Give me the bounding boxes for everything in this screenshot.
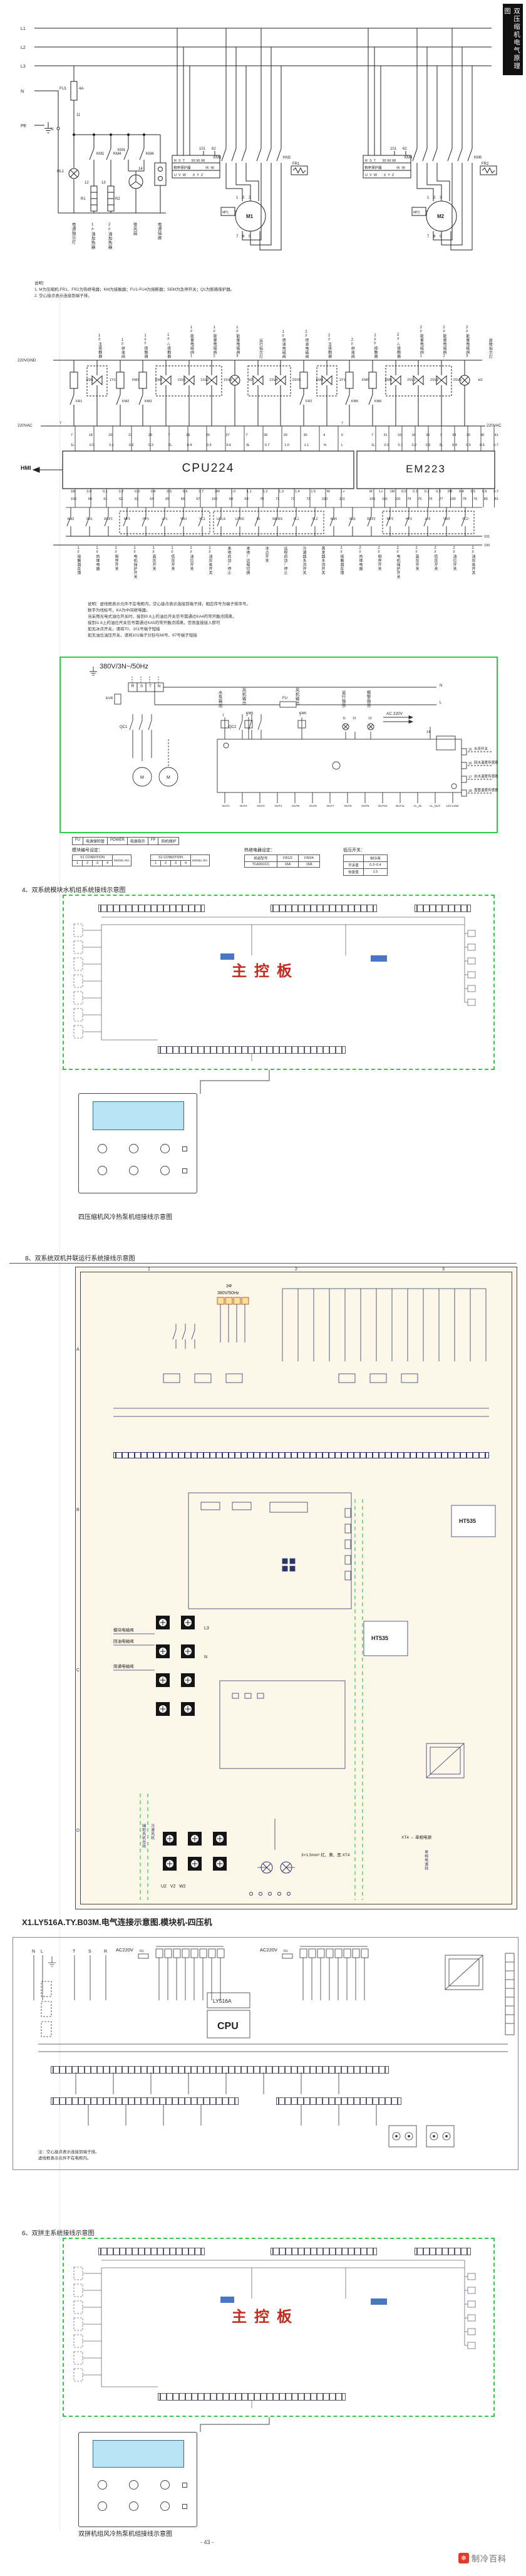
wire-number: 6 [341,434,343,437]
t1-col: 4 [103,861,113,866]
input-caption: 2#电机保护开关 [381,546,400,579]
terminal: 0.6 [226,444,231,447]
r-label: R [104,1950,107,1954]
bus-n: N [21,90,24,94]
t1-title: 模块编号设定： [72,848,103,853]
terminal: 0.2 [129,444,134,447]
contact-tag: KM4 [113,152,121,156]
t1-col: 1 [151,861,161,866]
display-wire-svg [175,1070,276,1094]
wire-number: 101 [339,497,345,501]
panel-button [129,2480,138,2490]
wire-number: 100 [71,497,76,501]
wire-number: 73 [306,497,310,501]
output-tag: KM3 [124,378,147,382]
callout-fan1: 风机输出 [241,688,245,705]
sensor-num: 17 [468,776,472,779]
legend-cell: 电源保险管 [83,837,108,845]
fu-label: FU [140,1950,144,1953]
wire-12: 12 [85,181,89,185]
note-line: 数字为线标号，KA为中间继电器。 [88,608,250,614]
output-tag: 2SV2 [423,378,446,382]
legend-cell: 风机保护 [158,837,179,845]
input-caption: 远程启动/停止 [268,546,287,575]
output-tag: KM6 [354,378,377,382]
input-caption: 1#电机保护开关 [118,546,137,579]
fan-label-2: 冷凝风机 [150,1824,154,1840]
note-line: 当采用光电式油位开关时，接到I0.6上的油位开关信号需通过KA4的常开触点隔离， [88,614,250,620]
panel-button [160,2501,170,2511]
t3-cell [344,855,364,862]
input-caption: 1#接触器反馈 [61,546,80,575]
output-tag: 2SV3 [446,378,469,382]
wire-number: 70 [260,497,264,501]
motor-m: M [167,776,170,780]
terminal: 2M [215,490,220,494]
pp-bot-terminals: U V W X Y Z [365,174,394,177]
terminal: 3L [246,444,250,447]
winding-terminals: 7 8 9 [236,235,251,239]
cpu-bottom-wires: 1006061626364656667100686970717273100101 [71,497,345,501]
input-tag: FR2 [343,517,362,521]
output-caption: 2#能量电磁阀1 [400,326,423,358]
wire-number: 69 [245,497,249,501]
wire-number: 26 [206,434,210,437]
section4-heading: 4、双系统模块水机组系统接线示意图 [22,885,126,894]
wire-number: 67 [196,497,200,501]
wire-number: 81 [495,497,498,501]
pp-title: 相序保护器 [173,165,191,170]
wire-number: 31 [383,434,387,437]
input-tags: KM2FR1RCP1MP1HP1LP1YW1YC1LR/LSLC/RCB1RR/… [61,517,475,521]
terminal: 0.2 [119,490,124,494]
hmi-label: HMI [21,465,31,472]
output-caption: 2#能量电磁阀2 [423,326,446,358]
wire-number: 4 [323,434,325,437]
cpu-label: CPU [217,2021,239,2032]
wire-number: 76 [428,497,432,501]
input-tag: HP2 [400,517,418,521]
cpu-bottom-terminals: 1M0.00.10.20.30.40.50.60.72M1.01.11.21.3… [71,490,345,494]
wire-number: 25 [186,434,190,437]
note-line: 接到I1.6上的油位开关信号需通过KA5的常开触点隔离，否则直接接入即可 [88,620,250,626]
wire-101: 101 [199,147,206,151]
terminal: 0.7 [265,444,270,447]
output-tag: KM2 [147,378,170,382]
power-spec: 380V/50Hz [217,1291,239,1296]
rail-101: 101 [484,535,490,539]
wire-number: 62 [119,497,123,501]
wire-number: 40 [480,434,484,437]
terminal: 0.2 [425,490,430,494]
note-line: 2. 空心接点表示连接到端子排。 [34,293,234,299]
main-board-label: 主控板 [232,2304,299,2326]
control-board-wires-svg [64,896,496,1071]
single-phase-label: 单相电源线 [423,1850,428,1871]
wire-number: 71 [276,497,279,501]
output-tag: 2SV5 [285,378,308,382]
t2-cell: 机组型号 [245,855,277,862]
terminal: 0.4 [187,444,192,447]
terminal: N [324,444,326,447]
panel-button [98,2501,107,2511]
sensor-num: 15 [468,748,472,752]
terminal: M [369,490,373,494]
note-line: 如无冰点开关，请将70、101号端子短接 [88,626,250,633]
legend-cell: FP [148,837,159,845]
terminal: 1.3 [279,490,284,494]
wire-101: 101 [390,147,397,151]
terminal: 0.3 [436,490,441,494]
lamp-tag: HL1 [57,170,64,174]
wire-number: 80 [484,497,488,501]
note-line: 注：空心接点表示连接到端子排。 [38,2149,100,2156]
terminal: 1L [71,444,75,447]
aux-contact-tag: KM6 [374,400,381,403]
side-tab-label: 双压缩机电气原理图 [503,8,522,75]
terminal: M [327,490,330,494]
callout-pump: 水泵输出 [217,690,222,708]
wire-11: 11 [76,113,81,117]
km-bank-tag: KM1 [214,156,222,160]
wire-13: 13 [101,181,106,185]
wire-number: 63 [135,497,138,501]
bus-pe: PE [21,124,27,128]
km-bank-tag: KM2 [283,156,291,160]
terminal: 0.3 [148,444,153,447]
section6-heading: X1.LY516A.TY.B03M.电气连接示意图.模块机-四压机 [22,1918,212,1927]
motor-protector-tag: MP2 [413,211,420,215]
power-spec: 380V/3N~/50Hz [100,663,148,670]
pp-top-terminals: R S T 93 96 98 [174,159,205,163]
plc-notes: 说明：虚线框表示元件不在电柜内，空心接点表示连接到端子排，相应序号为端子排序号。… [88,601,250,639]
input-tag: KM5 [324,517,343,521]
t1-col: 2 [83,861,93,866]
motor-m: M [140,776,144,780]
display-panel-2 [78,2432,197,2527]
input-tag: KM2 [61,517,80,521]
lcd-screen [93,1101,184,1130]
section-plc-wiring: 101 100 7 7 1#主接触器1#供液阀1#Y接触器1#△接触器1#能量电… [16,301,510,564]
wire-number: 7 [371,434,373,437]
l-label: L [41,1950,43,1954]
lcd-screen [93,2440,184,2468]
board-notes: 注：空心接点表示连接到端子排。虚线框表示元件不在电柜内。 [38,2149,100,2162]
km5-tag: KM5 [246,712,253,715]
wire-number: 65 [165,497,169,501]
ac220-label: AC 220V [386,712,403,716]
rail-ac-right: 220VAC [487,423,502,428]
valve-label: 旁通电磁阀 [113,1663,134,1669]
terminal: 2M [448,490,453,494]
output-tag: 1Y1 [101,378,125,382]
module-id-table-2: S1 CONDITIONMODEL NO. 1 2 3 4 [150,854,210,866]
wire-number: 68 [229,497,233,501]
output-caption: 2#供液阀 [331,338,354,359]
output-caption: 2#喷液电磁阀 [285,330,308,359]
terminal: 0.3 [135,490,140,494]
cpu-top-terminals: 1L0.00.10.20.32L0.40.50.63L0.71.01.1NL [71,444,343,447]
terminal: 0.7 [493,490,498,494]
s-label: S [88,1950,91,1954]
terminal: 0.1 [413,490,418,494]
note-line: 说明： [34,281,234,287]
legend-cell: FU [72,837,83,845]
board-terminal: OUT6 [304,804,322,808]
t3-cell: 1.5 [364,869,388,876]
terminal: 1M [71,490,76,494]
wire-number: 74 [407,497,411,501]
em-bottom-terminals: ML+1M0.00.10.20.32M0.40.50.60.7 [369,490,498,494]
terminal: 1.1 [304,444,309,447]
terminal: 0.0 [401,490,406,494]
wire-7: 7 [59,422,61,425]
terminal: 0.6 [183,490,188,494]
wire-number: 7 [245,434,247,437]
bus-l3: L3 [21,65,26,69]
wire-number: 75 [418,497,421,501]
input-tag: FR1 [80,517,99,521]
schematic-notes: 说明：1. M为压缩机;FR1、FR2为热继电器；KM为接触器；FU1-FU4为… [34,281,234,299]
terminal: 1.0 [231,490,236,494]
u2v2w2-label: U2 V2 W2 [161,1884,186,1889]
em-bottom-wires: 1001011007475767710078798081 [369,497,498,501]
wire-number: 20 [108,434,112,437]
legend-cell: 电源指示 [128,837,148,845]
brand-name: 制冷百科 [472,2552,507,2564]
panel-button [129,1144,138,1153]
terminal: 0.1 [109,444,114,447]
t1-col: 1 [73,861,83,866]
wire-number: 77 [439,497,443,501]
t3-cell: 0.3~0.4 [364,862,388,869]
legend-table: FU电源保险管POWER电源指示FP风机保护 [72,837,179,845]
terminal: 0.4 [452,444,457,447]
input-tag: LC/RC [230,517,249,521]
low-pressure-table: 制冷用 开关值0.3~0.4 恢复值1.5 [343,854,388,876]
n-label: N [204,1655,207,1659]
fuse-rating: 4A [79,87,83,91]
brand-logo-icon: ❄ [458,2553,469,2563]
panel-button [129,1166,138,1175]
terminal: 0.1 [103,490,108,494]
terminal: 0.1 [398,444,403,447]
terminal: 0.5 [466,444,471,447]
terminal: 1.1 [247,490,252,494]
input-caption: 2#接触器反馈 [324,546,343,575]
sensor-num: 18 [468,789,472,793]
wire-number: 60 [88,497,92,501]
wire-number: 34 [412,434,416,437]
aux-contact-tag: KM5 [351,400,358,403]
fu-label: FU [284,1950,288,1953]
output-caption: 1#Y接触器 [124,334,147,358]
wire-num: 12 [353,717,356,720]
input-caption: 冰点开关 [249,546,268,563]
control-board-wires-svg [64,2239,496,2418]
output-caption: 2#能量电磁阀3 [446,326,469,358]
wire-number: 38 [452,434,456,437]
wire-number: 7 [440,434,442,437]
board-terminal: OUT10 [374,804,391,808]
terminal: 0.5 [207,444,212,447]
caption-exhaust-fan: 排风扇 [132,222,137,236]
terminal: N [155,684,163,688]
pp-title: 相序保护器 [364,165,382,170]
terminal: 1M [389,490,394,494]
t2-cell: 16A [277,862,299,868]
caption-power-lamp: 电源指示灯 [71,222,75,244]
terminal: 0.0 [87,490,92,494]
board-terminal: AL_OUT [426,804,444,808]
chip-label: HT535 [371,1635,388,1641]
wire-num: 13 [368,717,372,720]
panel-led [182,1146,187,1151]
wire-number: 72 [291,497,295,501]
em-top-terminals: 1L0.00.10.20.32L0.40.50.60.7 [371,444,498,447]
board-terminal: OUT4 [269,804,287,808]
rail-100: 100 [484,544,490,548]
n-label: N [32,1950,35,1954]
terminal: 2L [168,444,172,447]
note-line: 如无油位油压开关，请将101端子分别与66号、67号端子短接 [88,633,250,639]
t3-cell: 开关值 [344,862,364,869]
terminal: 0.3 [426,444,431,447]
ac220v-label: AC220V [260,1947,277,1953]
schematic-svg: L1 L2 L3 N PE N FU1 4A 11 HL1 KM1 KM4 KM… [16,9,498,279]
wire-number: 66 [181,497,185,501]
output-caption: 运行指示灯 [239,338,262,359]
t1-col: 3 [171,861,181,866]
margin-line [59,294,60,2531]
callout-alarm: 报警指示 [366,690,370,708]
t2-title: 热继电器设定： [244,848,275,853]
output-caption: 2#Y接触器 [354,334,377,358]
output-tag: 1SV3 [216,378,239,382]
legend-cell: POWER [108,837,128,845]
board-terminal: AL_IN [409,804,426,808]
input-caption: 1#油压差开关 [193,546,212,575]
input-caption: 1#高压开关 [137,546,155,571]
wire-num: 1 [222,714,224,717]
wire-number: 27 [226,434,230,437]
chip-label: HT535 [459,1518,476,1524]
terminal: 0.2 [412,444,417,447]
contact-tag: KM1 [96,152,105,156]
wire-62: 62 [212,147,216,151]
output-tag: KM1 [78,378,101,382]
board-terminal: OUT2 [235,804,252,808]
valve-label: 模块电磁阀 [113,1627,134,1633]
wire-spec: 3×1.5mm² 红、黄、黑 XT4 [301,1852,350,1857]
board-terminal: OUT11 [391,804,409,808]
section-dual-compressor-schematic: L1 L2 L3 N PE N FU1 4A 11 HL1 KM1 KM4 KM… [16,9,498,279]
input-caption: 2#相序开关 [362,546,381,571]
terminal: T [146,684,155,688]
l3-label: L3 [204,1626,209,1631]
ly516a-svg: N L T S R AC220V FU AC220V FU LY516A CPU [13,1938,518,2169]
output-caption: 1#喷液电磁阀 [262,330,286,359]
em-top-wires: 731333436738394041 [371,434,498,437]
overload-tag: FR1 [292,162,300,166]
output-caption: 1#能量电磁阀1 [170,326,193,358]
pp-top-terminals: R S T 93 96 98 [365,159,396,163]
terminal: 1.0 [284,444,289,447]
wire-number: 101 [382,497,388,501]
input-tag: SL1 [287,517,306,521]
divider [9,1263,517,1264]
wire-number: 18 [89,434,93,437]
display-panel-1 [78,1093,197,1193]
xt4-label: XT4 → 单相电源 [401,1834,432,1840]
input-tag: LR/LS [212,517,230,521]
terminal: 1.4 [295,490,300,494]
output-tag: 1SV1 [170,378,193,382]
input-tag: HP1 [137,517,155,521]
output-caption: 1#△接触器 [147,333,170,358]
aux-contact-tag: KM3 [145,400,152,403]
input-caption: 1#低压开关 [155,546,174,571]
ac220v-label: AC220V [116,1947,133,1953]
output-tag: H2 [239,378,262,382]
output-caption: 1#供液阀 [101,338,125,359]
panel-led [182,2504,187,2509]
wire-number: 7 [168,434,170,437]
wire-number: 64 [150,497,153,501]
output-tag: KM5 [377,378,400,382]
output-tag: 2SV1 [400,378,423,382]
motor-protector-tag: MP1 [222,211,229,215]
panel-button [160,1166,170,1175]
wire-number: 28 [264,434,267,437]
panel-button [98,1166,107,1175]
wire-number: 33 [398,434,401,437]
terminal: 0.0 [384,444,389,447]
input-tag: SL2 [306,517,324,521]
note-line: 虚线框表示元件不在电柜内。 [38,2156,100,2162]
contact-tag: KM4 [146,152,154,156]
winding-terminals: 1 2 3 [427,196,442,200]
wire-number: 78 [463,497,467,501]
wire-number: 41 [495,434,498,437]
sensor-caption: 出水温度传感器 [474,775,498,779]
display-wire-svg [175,2417,276,2432]
panel-button [98,2480,107,2490]
section7-caption: 双拼机组风冷热泵机组接线示意图 [78,2531,172,2538]
panel-button [129,2501,138,2511]
cad-svg: 3Φ 380V/50Hz HT535 HT535 模块电磁阀 回油电磁阀 旁通电… [76,1267,518,1910]
wire-14: 14 [138,167,143,171]
t3-cell: 恢复值 [344,869,364,876]
section4-caption: 四压缩机风冷热泵机组接线示意图 [78,1214,172,1221]
wire-number: 23 [148,434,152,437]
motor-tag: M1 [246,214,254,219]
section-module-unit-wiring: N L FU EVR QC1 QC2 M M 1 2 7 11 12 13 KM… [59,657,498,833]
main-board-label: 主控板 [232,958,299,980]
terminal: 0.7 [199,490,204,494]
panel-button [160,2480,170,2490]
winding-terminals: 7 8 9 [427,235,442,239]
t1-header: S1 CONDITION [73,855,113,861]
section-cad-schematic: 1 2 3 A B C D [75,1267,517,1909]
wire-number: 61 [103,497,107,501]
sensor-caption: 水流开关 [474,747,488,751]
sensor-caption: 回水温度传感器 [474,761,498,765]
input-caption: 本地/远程切换 [230,546,249,575]
t3-title: 低压开关： [343,848,365,853]
output-tag: 1SV2 [193,378,216,382]
terminal: L [341,444,343,447]
